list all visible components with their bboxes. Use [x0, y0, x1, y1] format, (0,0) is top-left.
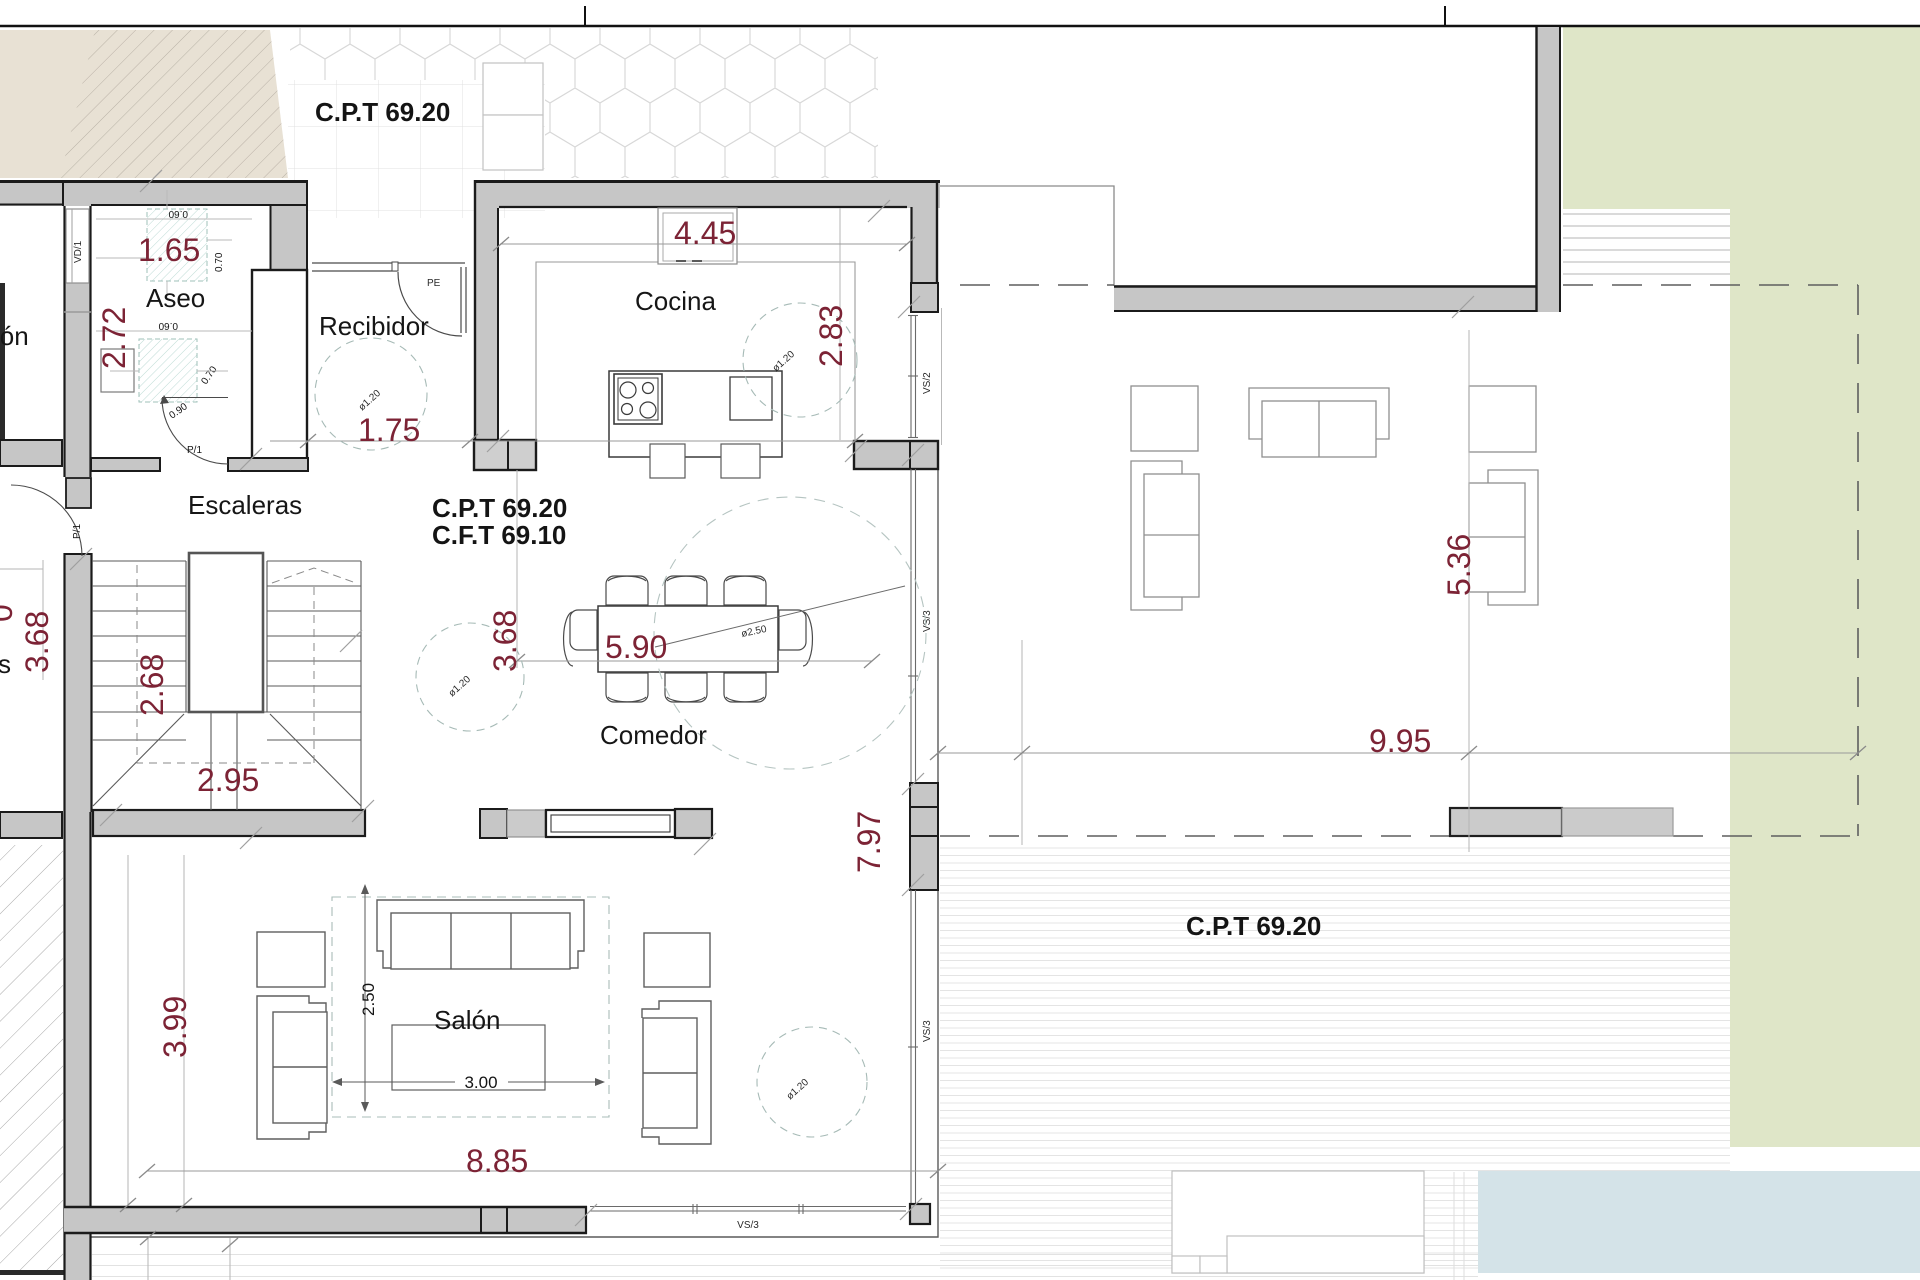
- svg-text:0.70: 0.70: [214, 252, 225, 272]
- svg-text:2.72: 2.72: [96, 307, 132, 369]
- svg-text:5.90: 5.90: [605, 629, 667, 665]
- svg-text:C.P.T 69.20: C.P.T 69.20: [315, 97, 450, 127]
- svg-text:2.83: 2.83: [813, 305, 849, 367]
- svg-text:P/1: P/1: [72, 524, 83, 539]
- svg-text:8.85: 8.85: [466, 1143, 528, 1179]
- svg-text:ión: ión: [0, 321, 29, 351]
- svg-text:VS/3: VS/3: [922, 1020, 933, 1042]
- svg-text:4.45: 4.45: [674, 215, 736, 251]
- svg-text:0.60: 0.60: [158, 320, 178, 331]
- svg-text:9.95: 9.95: [1369, 723, 1431, 759]
- svg-text:VS/2: VS/2: [922, 372, 933, 394]
- svg-text:PE: PE: [427, 278, 441, 289]
- svg-text:2.50: 2.50: [359, 983, 378, 1016]
- svg-text:C.F.T 69.10: C.F.T 69.10: [432, 520, 566, 550]
- svg-text:0: 0: [0, 604, 19, 622]
- svg-text:VS/3: VS/3: [922, 610, 933, 632]
- svg-text:2.95: 2.95: [197, 762, 259, 798]
- svg-text:3.00: 3.00: [464, 1073, 497, 1092]
- svg-text:Escaleras: Escaleras: [188, 490, 302, 520]
- svg-text:Comedor: Comedor: [600, 720, 707, 750]
- svg-text:P/1: P/1: [187, 445, 202, 456]
- svg-text:3.99: 3.99: [157, 996, 193, 1058]
- svg-text:3.68: 3.68: [487, 610, 523, 672]
- svg-text:VS/3: VS/3: [737, 1220, 759, 1231]
- svg-text:7.97: 7.97: [851, 811, 887, 873]
- svg-text:2.68: 2.68: [134, 654, 170, 716]
- svg-text:1.75: 1.75: [358, 412, 420, 448]
- svg-text:Cocina: Cocina: [635, 286, 716, 316]
- svg-text:Salón: Salón: [434, 1005, 501, 1035]
- svg-text:s: s: [0, 649, 11, 679]
- svg-text:3.68: 3.68: [19, 611, 55, 673]
- svg-text:0.60: 0.60: [168, 208, 188, 219]
- svg-text:VD/1: VD/1: [73, 240, 84, 263]
- svg-text:C.P.T 69.20: C.P.T 69.20: [432, 493, 567, 523]
- svg-text:Recibidor: Recibidor: [319, 311, 429, 341]
- svg-text:5.36: 5.36: [1441, 534, 1477, 596]
- svg-text:1.65: 1.65: [138, 232, 200, 268]
- svg-text:Aseo: Aseo: [146, 283, 205, 313]
- svg-text:C.P.T 69.20: C.P.T 69.20: [1186, 911, 1321, 941]
